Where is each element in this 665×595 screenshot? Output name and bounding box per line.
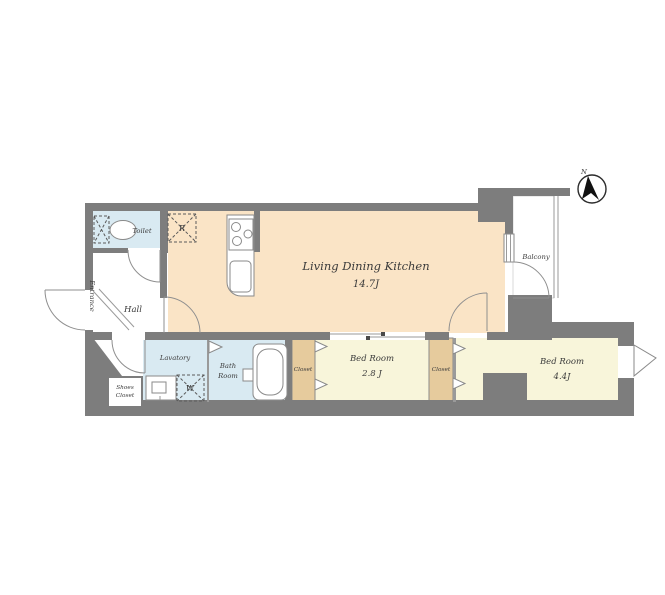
balcony-floor	[513, 196, 554, 298]
lavatory-label: Lavatory	[159, 354, 191, 362]
entrance-door-arc	[45, 290, 85, 330]
bedroom-small-size: 2.8 J	[361, 369, 382, 379]
kitchen-sink-icon	[230, 261, 251, 292]
compass-north-label: N	[580, 168, 588, 176]
ldk-label: Living Dining Kitchen	[301, 259, 429, 273]
entrance-label: Entrance	[88, 279, 96, 312]
bedroom-large-window	[618, 345, 656, 378]
stove-icon	[229, 219, 253, 250]
bedroom-small-label: Bed Room	[349, 354, 394, 364]
balcony-railing	[554, 196, 558, 298]
bedroom-large-label: Bed Room	[539, 357, 584, 367]
bathroom-label-line1: Bath	[219, 362, 236, 370]
bedroom-large-size: 4.4J	[553, 372, 572, 382]
closet-right-label: Closet	[432, 367, 451, 373]
lavatory-door-arc	[112, 340, 145, 373]
shoes-closet-box: Shoes Closet	[108, 377, 142, 407]
floor-plan: Shoes Closet N Living Dining Kitchen 14.…	[0, 0, 665, 595]
shoes-closet-label-line1: Shoes	[116, 385, 134, 391]
sliding-door	[330, 332, 425, 340]
toilet-label: Toilet	[132, 227, 151, 235]
ldk-size: 14.7J	[353, 279, 380, 290]
washing-machine-label: W	[186, 384, 195, 393]
refrigerator-label: R	[178, 224, 185, 233]
compass-icon: N	[578, 168, 606, 203]
hall-label: Hall	[123, 305, 142, 315]
room-bedroom-large-floor	[456, 338, 618, 402]
bathroom-label-line2: Room	[217, 372, 238, 380]
lavatory-sink-icon	[146, 376, 176, 400]
closet-left-label: Closet	[294, 367, 313, 373]
balcony-window	[504, 234, 514, 262]
toilet-door-arc	[128, 250, 160, 282]
shoes-closet-label-line2: Closet	[116, 393, 135, 399]
balcony-label: Balcony	[521, 253, 549, 261]
